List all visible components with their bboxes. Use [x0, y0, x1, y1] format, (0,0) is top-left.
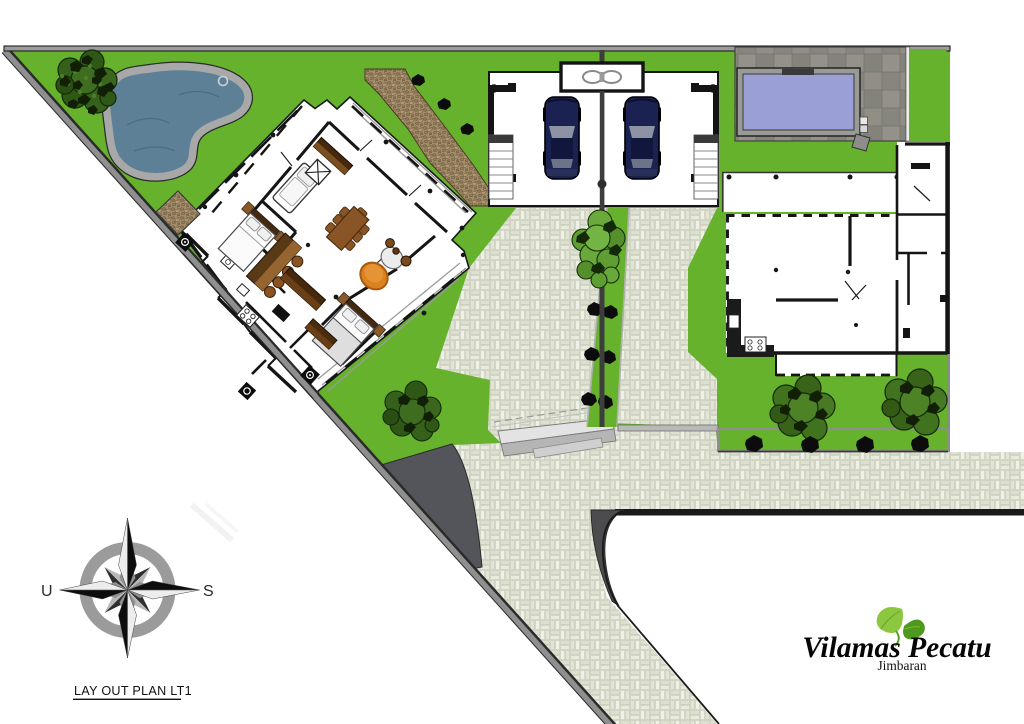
- svg-text:Jimbaran: Jimbaran: [877, 658, 926, 673]
- svg-text:U: U: [41, 583, 53, 600]
- svg-text:LAY OUT PLAN LT1: LAY OUT PLAN LT1: [74, 684, 192, 698]
- svg-text:S: S: [203, 583, 214, 600]
